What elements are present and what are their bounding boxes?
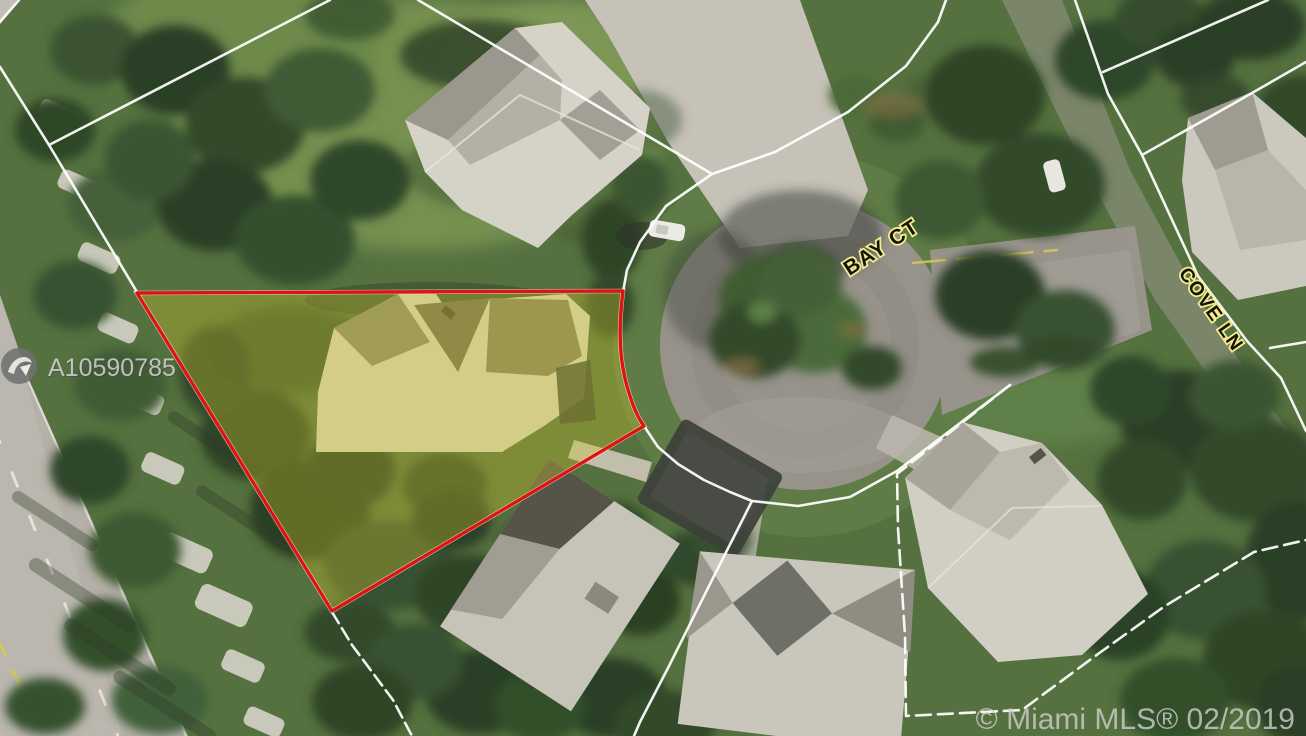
satellite-map: BAY CT COVE LN A10590785 A10590785 © Mia… [0,0,1306,736]
mls-logo-icon [1,348,37,384]
mls-id-group: A10590785 A10590785 [1,348,177,384]
mls-id-text: A10590785 [48,354,176,382]
aerial-photo-canvas: BAY CT COVE LN A10590785 A10590785 © Mia… [0,0,1306,736]
watermark-text: © Miami MLS® 02/2019 [976,703,1295,736]
